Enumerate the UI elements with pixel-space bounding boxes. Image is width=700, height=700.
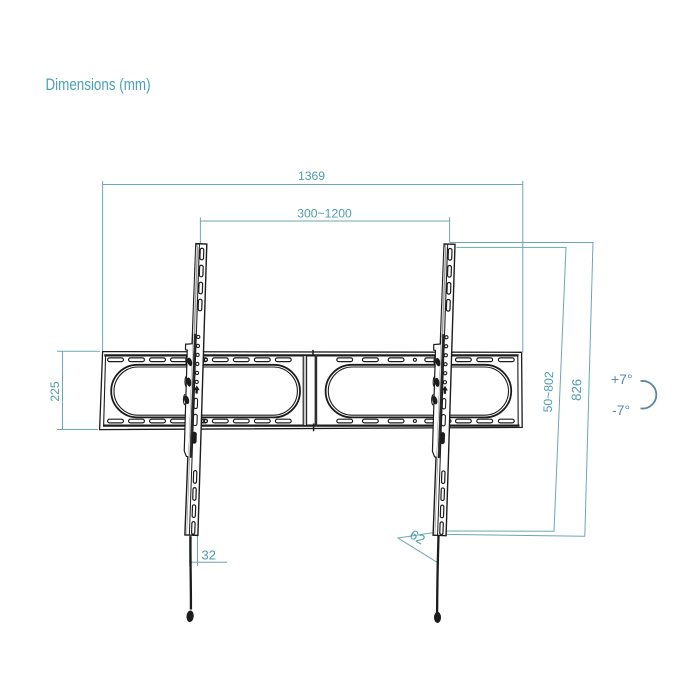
svg-text:-7°: -7°: [612, 402, 630, 418]
svg-text:32: 32: [202, 548, 216, 563]
svg-text:826: 826: [569, 379, 585, 402]
svg-text:1369: 1369: [298, 169, 325, 183]
svg-text:62: 62: [407, 527, 428, 548]
svg-text:50~802: 50~802: [541, 371, 556, 413]
svg-text:300~1200: 300~1200: [297, 207, 352, 221]
svg-text:Dimensions (mm): Dimensions (mm): [46, 76, 151, 95]
svg-text:+7°: +7°: [611, 371, 633, 387]
svg-text:225: 225: [48, 381, 62, 402]
